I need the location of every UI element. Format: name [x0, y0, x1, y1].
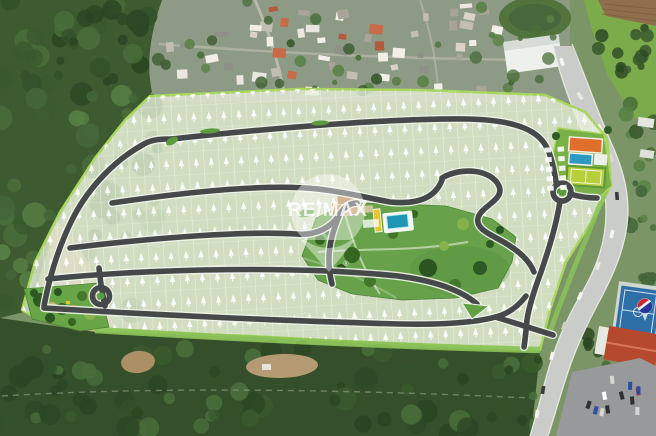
- aerial-scene: RE/MAX ®: [0, 0, 656, 436]
- aerial-masterplan-frame: RE/MAX ®: [0, 0, 656, 436]
- roundabout-island-sw: [98, 293, 105, 300]
- courts: [566, 137, 608, 188]
- marker-balloon: [638, 299, 653, 314]
- court-blue: [569, 153, 593, 166]
- watermark-registered: ®: [343, 260, 349, 268]
- small-shed: [262, 364, 271, 370]
- pool-area: [382, 210, 414, 233]
- playground-piece-1: [66, 301, 70, 304]
- court-orange: [569, 137, 603, 153]
- watermark-text: RE/MAX: [288, 200, 368, 221]
- court-pad-white: [594, 154, 608, 166]
- swimming-pool: [386, 214, 408, 229]
